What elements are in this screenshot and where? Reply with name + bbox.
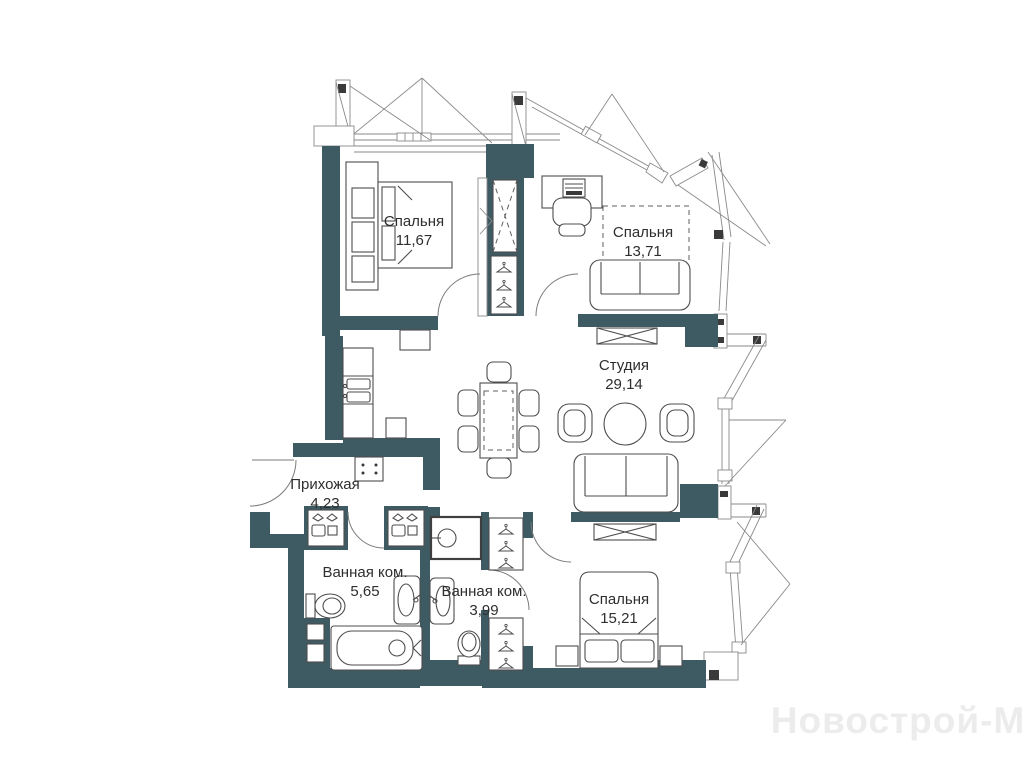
svg-text:3,99: 3,99: [469, 602, 498, 619]
vanity: [431, 517, 481, 559]
room-label-studio: Студия 29,14: [599, 357, 649, 393]
svg-text:4,23: 4,23: [310, 495, 339, 512]
svg-text:Студия: Студия: [599, 357, 649, 374]
sink: [394, 576, 420, 624]
armchair-left: [558, 404, 592, 442]
svg-text:Ванная ком.: Ванная ком.: [441, 583, 526, 600]
sofa-2: [574, 454, 678, 512]
room-label-hallway: Прихожая 4,23: [290, 476, 360, 512]
tv-console: [597, 328, 657, 344]
svg-text:Спальня: Спальня: [384, 213, 444, 230]
svg-text:5,65: 5,65: [350, 583, 379, 600]
bathtub: [331, 626, 422, 670]
studio-furniture: [343, 328, 694, 512]
bath1-door-arc: [348, 512, 384, 548]
chair: [487, 458, 511, 478]
sofa: [590, 260, 690, 310]
coffee-table: [604, 403, 646, 445]
svg-text:Спальня: Спальня: [613, 224, 673, 241]
bedroom3-door-arc: [531, 522, 571, 562]
tv-console-2: [594, 524, 656, 540]
watermark: Новострой-М: [771, 700, 1024, 741]
armchair-right: [660, 404, 694, 442]
floor-plan: Спальня 11,67 Спальня 13,71 Студия 29,14…: [0, 0, 1024, 768]
svg-text:Ванная ком.: Ванная ком.: [322, 564, 407, 581]
chair: [519, 426, 539, 452]
bedroom-2-furniture: [542, 176, 690, 310]
svg-text:Прихожая: Прихожая: [290, 476, 360, 493]
chair: [458, 426, 478, 452]
svg-text:13,71: 13,71: [624, 243, 662, 260]
floor-plan-page: Спальня 11,67 Спальня 13,71 Студия 29,14…: [0, 0, 1024, 768]
nightstand: [660, 646, 682, 666]
kitchen-appliance: [386, 418, 406, 438]
chair: [458, 390, 478, 416]
nightstand: [556, 646, 578, 666]
bedroom1-door-arc: [438, 274, 480, 316]
toilet: [458, 631, 480, 665]
dining-table: [480, 383, 517, 458]
svg-text:15,21: 15,21: [600, 610, 638, 627]
room-label-bedroom-2: Спальня 13,71: [613, 224, 673, 260]
entry-door-arc: [250, 460, 296, 506]
svg-text:29,14: 29,14: [605, 376, 643, 393]
chair: [487, 362, 511, 382]
kitchen-cabinet: [400, 330, 430, 350]
bedroom2-door-arc: [536, 274, 578, 316]
chair: [519, 390, 539, 416]
kitchen: [343, 330, 430, 438]
toilet: [306, 594, 345, 618]
office-chair: [553, 198, 591, 226]
dining-set: [458, 362, 539, 478]
svg-text:Спальня: Спальня: [589, 591, 649, 608]
svg-text:11,67: 11,67: [396, 232, 432, 249]
